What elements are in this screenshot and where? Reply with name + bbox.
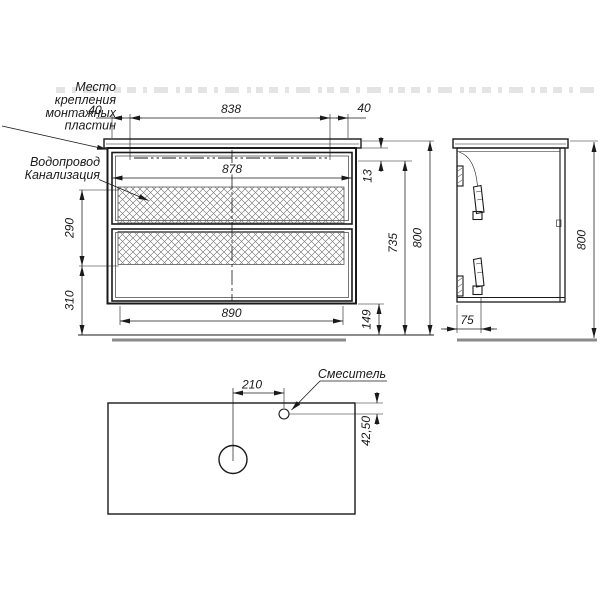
dim-side-total-height: 800 <box>575 230 589 250</box>
mixer-leader-line <box>292 381 321 410</box>
plan-countertop-outline <box>108 403 355 514</box>
plan-view <box>108 388 355 514</box>
side-mounting-plate-top <box>457 166 463 186</box>
dim-top-span: 838 <box>221 102 241 116</box>
dim-left-upper: 290 <box>63 218 77 239</box>
technical-drawing: 40 838 40 878 290 310 890 13 149 735 800 <box>0 0 600 600</box>
side-opening-arc <box>459 152 478 186</box>
extension-lines-left <box>79 190 119 266</box>
side-countertop <box>453 139 568 148</box>
callout-mounting-line4: пластин <box>65 119 116 133</box>
label-mixer: Смеситель <box>318 367 386 381</box>
front-hatch-zone-upper <box>118 187 344 223</box>
callout-mounting-line2: крепления <box>55 93 117 107</box>
side-mounting-plate-top-hatch <box>458 168 462 183</box>
dim-left-lower: 310 <box>63 290 77 310</box>
dim-right-inner-height: 735 <box>386 233 400 253</box>
side-body-outline <box>457 148 565 302</box>
dim-mixer-offset: 210 <box>241 378 262 392</box>
dim-right-total-height: 800 <box>411 228 425 248</box>
plan-mixer-hole <box>279 409 289 419</box>
extension-lines-13 <box>358 148 412 161</box>
side-mounting-plate-bottom <box>457 276 463 296</box>
callout-mounting-line1: Место <box>75 80 116 94</box>
dim-bottom-width: 890 <box>221 306 241 320</box>
dim-mixer-inset: 42,50 <box>359 416 373 446</box>
dimensions-side: 75 800 <box>441 141 598 338</box>
dim-top-gap: 13 <box>361 169 375 183</box>
dimensions-plan: 210 42,50 Смеситель <box>233 367 387 446</box>
callout-plumbing-line1: Водопровод <box>30 155 100 169</box>
callout-plumbing-line2: Канализация <box>25 168 101 182</box>
dim-right-bottom-gap: 149 <box>360 309 374 329</box>
dim-inner-width: 878 <box>222 162 242 176</box>
front-hatch-zone-lower <box>118 232 344 265</box>
extension-lines-4250 <box>289 403 383 414</box>
side-mounting-plate-bottom-hatch <box>458 278 462 293</box>
dim-top-right-offset: 40 <box>357 101 371 115</box>
dim-plate-depth: 75 <box>460 313 474 327</box>
drawing-page: 40 838 40 878 290 310 890 13 149 735 800 <box>0 0 600 600</box>
front-countertop <box>104 139 361 148</box>
